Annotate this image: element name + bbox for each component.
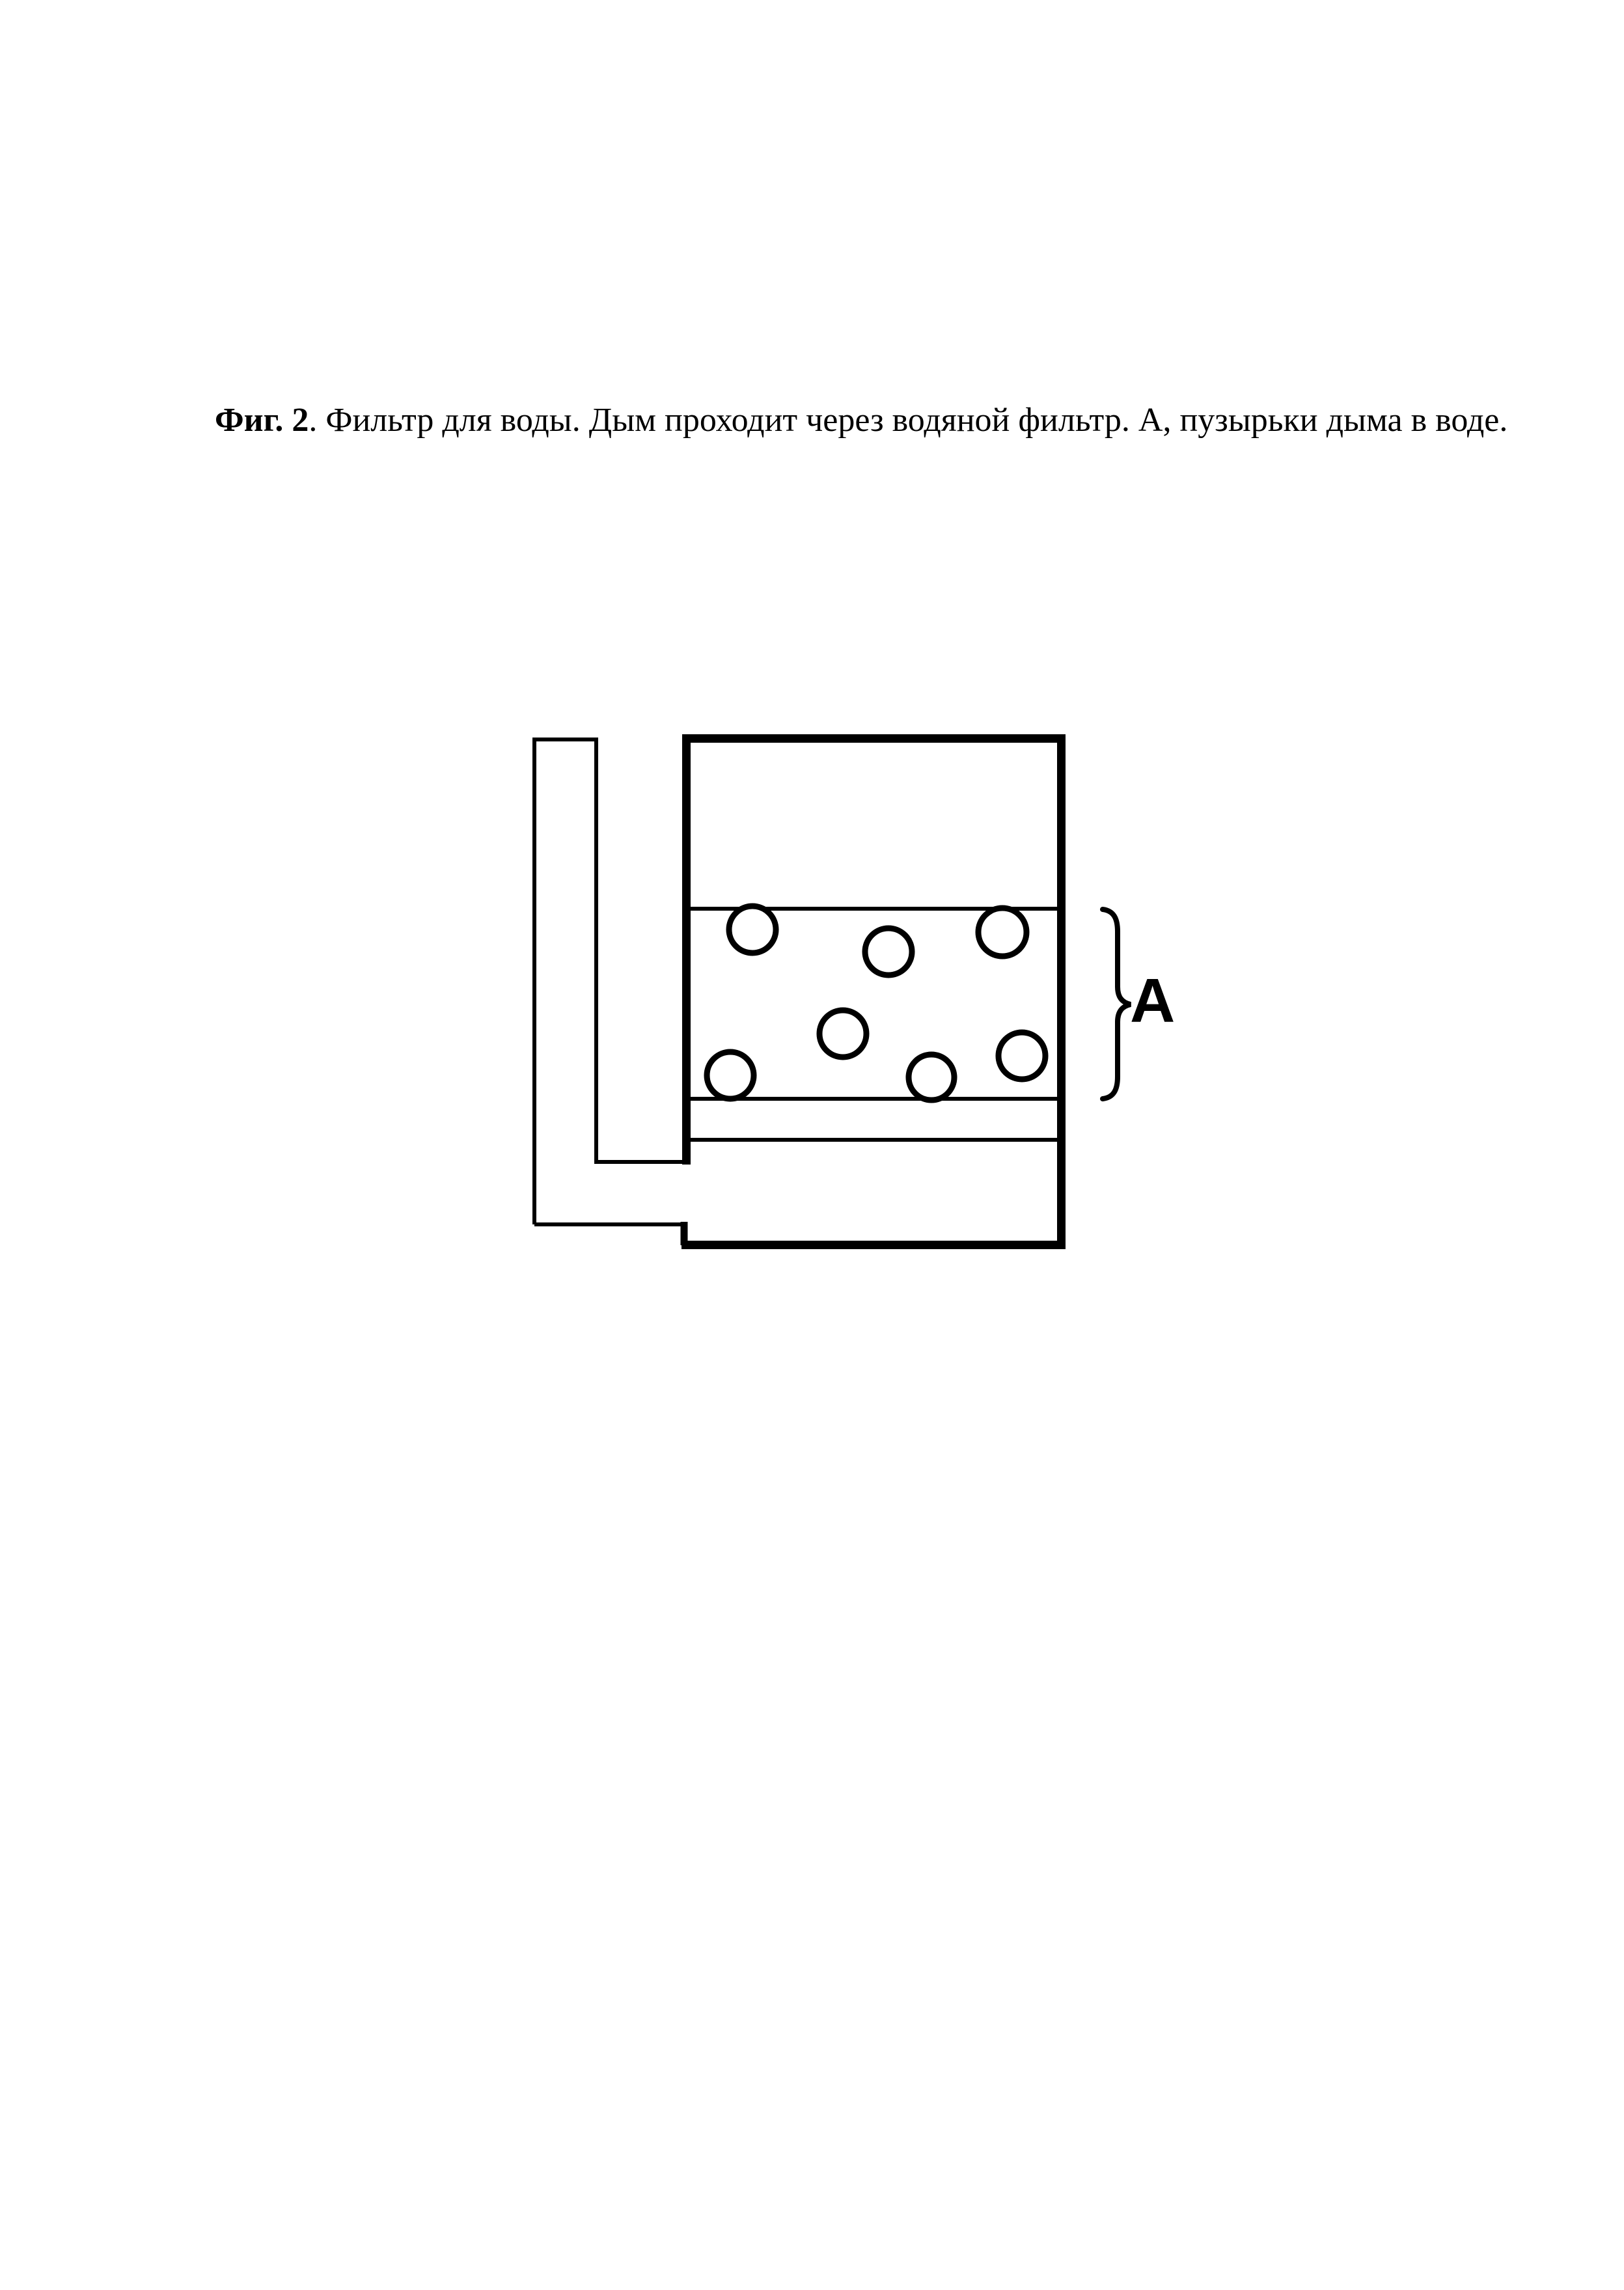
- smoke-bubble: [707, 1052, 754, 1099]
- smoke-bubble: [729, 906, 776, 953]
- water-filter-diagram: [0, 0, 1624, 2290]
- filter-container-wall: [681, 739, 1062, 1245]
- smoke-inlet-pipe: [534, 739, 686, 1224]
- smoke-bubble: [909, 1055, 954, 1100]
- smoke-bubble: [865, 928, 912, 975]
- smoke-bubble: [978, 908, 1026, 956]
- smoke-bubbles: [707, 906, 1045, 1100]
- zone-a-brace: [1103, 909, 1131, 1099]
- smoke-bubble: [819, 1010, 866, 1057]
- smoke-bubble: [998, 1032, 1045, 1079]
- zone-a-label: А: [1130, 970, 1175, 1032]
- document-page: Фиг. 2. Фильтр для воды. Дым проходит че…: [0, 0, 1624, 2290]
